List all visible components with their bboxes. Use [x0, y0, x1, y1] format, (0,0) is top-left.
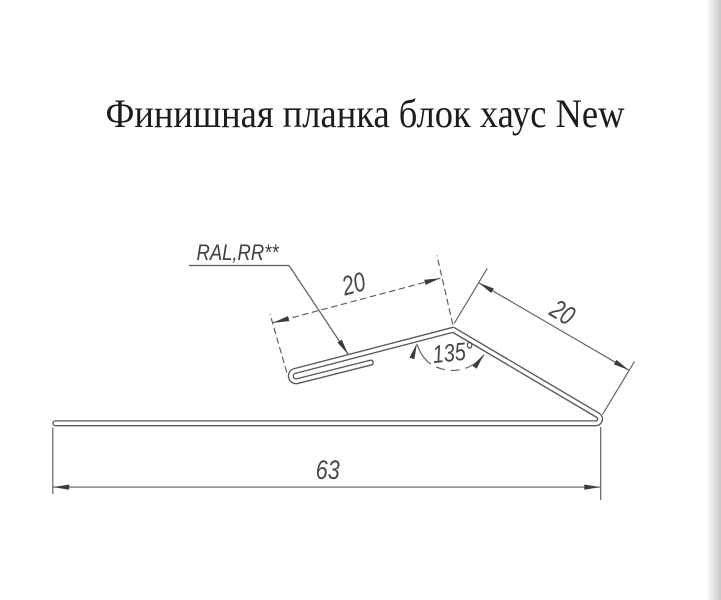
svg-text:Финишная планка блок хаус New: Финишная планка блок хаус New	[106, 91, 625, 136]
svg-text:RAL,RR**: RAL,RR**	[197, 240, 280, 265]
svg-text:135°: 135°	[431, 337, 475, 369]
svg-text:63: 63	[316, 455, 340, 485]
